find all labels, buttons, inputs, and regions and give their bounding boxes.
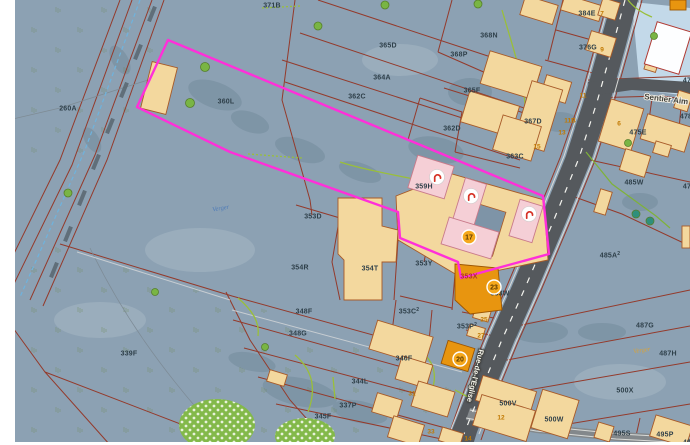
selected-parcel-label: 353X <box>460 274 477 281</box>
parcel-label: 487H <box>659 351 677 358</box>
parcel-label: 346F <box>396 356 413 363</box>
poi-badge[interactable]: 23 <box>487 280 501 294</box>
map-viewport: 371B365D368N368P364A362C360L260A365F362D… <box>0 0 690 445</box>
parcel-label: 500W <box>544 417 563 424</box>
building-number: 11B <box>564 118 576 125</box>
parcel-label: 500V <box>499 401 516 408</box>
building-number: 15 <box>533 144 541 151</box>
map-canvas[interactable]: 371B365D368N368P364A362C360L260A365F362D… <box>0 0 690 445</box>
parcel-label: 365D <box>379 43 397 50</box>
parcel-label: 337P <box>339 403 356 410</box>
building-number: 9 <box>600 47 604 54</box>
parcel-label: 348F <box>296 309 313 316</box>
parcel-label: 371B <box>263 3 281 10</box>
parcel-label: 353P2 <box>457 322 477 331</box>
parcel-label: 354R <box>291 265 309 272</box>
parcel-label: 365F <box>464 88 481 95</box>
building-number: 12 <box>497 415 505 422</box>
monument-icon[interactable] <box>464 189 479 204</box>
parcel-label: 475E <box>629 130 646 137</box>
building-number: 33 <box>427 429 435 436</box>
building-number: 14 <box>464 436 472 443</box>
parcel-label: 376G <box>579 45 597 52</box>
parcel-label: 339F <box>121 351 138 358</box>
parcel-label: 353Y <box>415 261 432 268</box>
parcel-label: 344L <box>352 379 369 386</box>
parcel-label: 360L <box>218 99 235 106</box>
building-number: 11 <box>580 93 587 100</box>
building-number: 6 <box>617 121 621 128</box>
parcel-label: 487G <box>636 323 654 330</box>
parcel-label: 354T <box>362 266 379 273</box>
parcel-label: 348G <box>289 331 307 338</box>
poi-badge-number: 23 <box>490 285 498 292</box>
parcel-label: 384E <box>578 11 595 18</box>
parcel-label: 485A2 <box>600 251 621 260</box>
parcel-label: 363C <box>506 154 524 161</box>
monument-icon[interactable] <box>522 207 537 222</box>
parcel-label: 362C <box>348 94 366 101</box>
parcel-label: 367D <box>524 119 542 126</box>
parcel-label: 476 <box>683 184 690 191</box>
building-number: 13 <box>558 130 566 137</box>
parcel-label: 495P <box>656 432 673 439</box>
parcel-label: 475 <box>683 78 690 85</box>
building-number: 25 <box>480 317 488 324</box>
parcel-label: 500X <box>616 388 633 395</box>
poi-badge[interactable]: 20 <box>453 352 467 366</box>
parcel-label: 260A <box>59 106 77 113</box>
poi-badge[interactable]: 17 <box>462 230 476 244</box>
parcel-label: 359H <box>415 184 433 191</box>
parcel-label: 345F <box>315 414 332 421</box>
monument-icon[interactable] <box>430 170 445 185</box>
building-number: 31 <box>408 391 416 398</box>
parcel-label: 495S <box>613 431 630 438</box>
poi-badge-number: 17 <box>465 235 473 242</box>
parcel-label: 478 <box>680 114 690 121</box>
building-number: 7 <box>600 11 604 18</box>
parcel-label: 362D <box>443 126 461 133</box>
building-number: 27 <box>477 333 485 340</box>
poi-badge-number: 20 <box>456 357 464 364</box>
parcel-label: 485W <box>624 180 643 187</box>
parcel-label: 364A <box>373 75 391 82</box>
parcel-label: 368N <box>480 33 498 40</box>
parcel-label: 353D <box>304 214 322 221</box>
parcel-label: 368P <box>450 52 467 59</box>
parcel-label: 353C2 <box>399 307 420 316</box>
